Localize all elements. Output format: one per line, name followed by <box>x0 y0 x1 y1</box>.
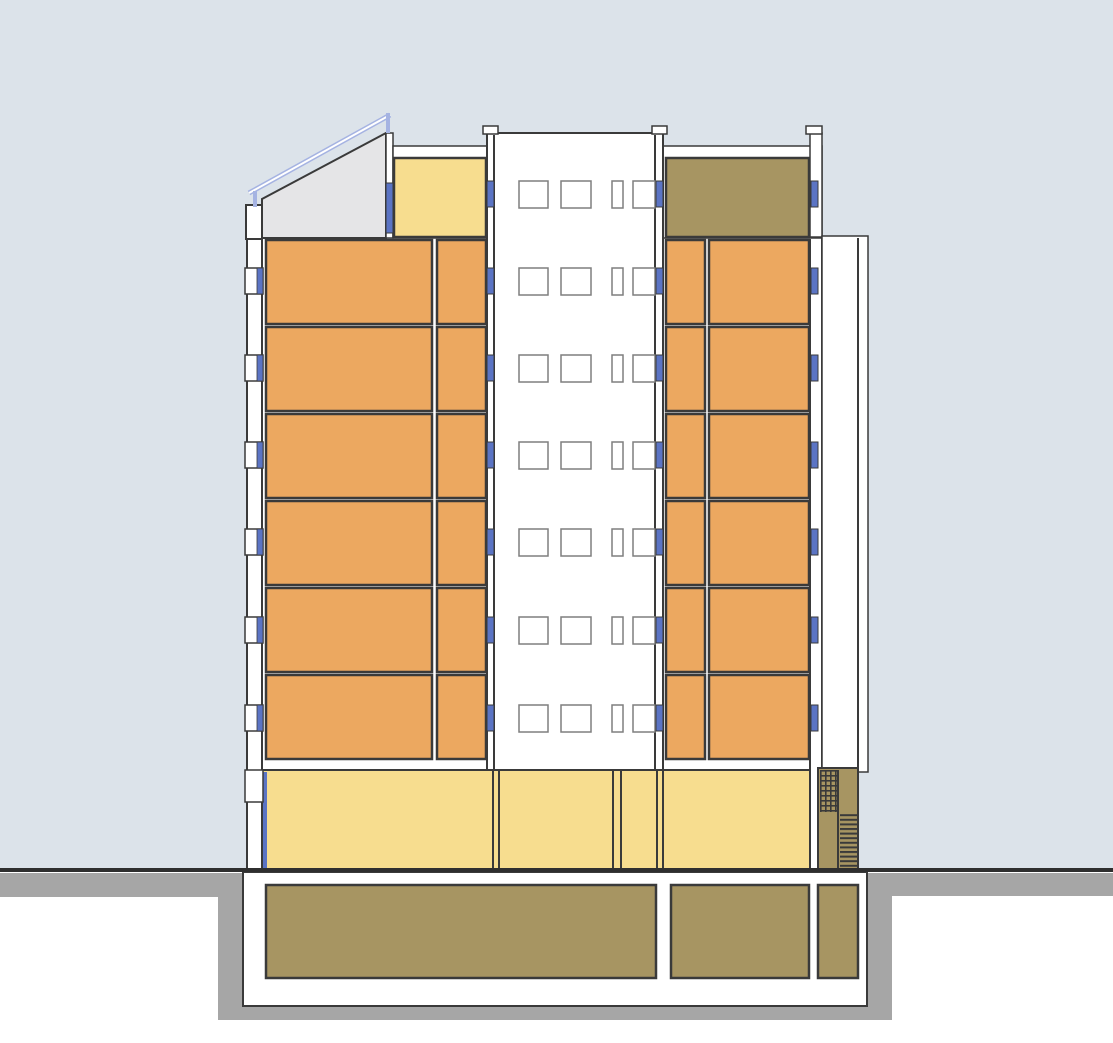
terrace-railing-post <box>253 191 257 207</box>
shaft-window <box>633 529 655 556</box>
shaft-door-glass <box>487 355 494 381</box>
shaft-window <box>561 181 591 208</box>
shaft-window <box>519 355 548 382</box>
ground-floor-partition <box>492 770 494 870</box>
apartment-room <box>266 327 432 411</box>
apartment-room <box>437 501 486 585</box>
apartment-room <box>709 675 809 759</box>
shaft-window <box>633 617 655 644</box>
right-wall-window-glass <box>811 268 818 294</box>
facade-window-glass <box>257 442 263 468</box>
side-annex <box>822 236 868 772</box>
right-wall-window-glass <box>811 529 818 555</box>
apartment-room <box>666 414 705 498</box>
facade-window-glass <box>257 617 263 643</box>
basement-room <box>671 885 809 978</box>
attic-room-olive <box>666 158 809 237</box>
shaft-window <box>633 268 655 295</box>
apartment-room <box>666 588 705 672</box>
parapet-cap-shaft-left <box>483 126 498 134</box>
ground-pit-wall-right <box>866 873 892 1020</box>
right-wall-window-glass <box>811 705 818 731</box>
stairwell-hatch <box>820 770 839 812</box>
attic-room-yellow <box>394 158 486 237</box>
shaft-window <box>519 442 548 469</box>
shaft-door-glass <box>656 268 663 294</box>
shaft-window <box>633 355 655 382</box>
shaft-door-glass <box>656 529 663 555</box>
shaft-window <box>612 617 623 644</box>
apartment-room <box>709 414 809 498</box>
ground-floor-hall <box>262 770 810 870</box>
shaft-door-glass <box>487 268 494 294</box>
facade-window-glass <box>257 268 263 294</box>
stair-flight <box>840 813 858 870</box>
shaft-window <box>612 529 623 556</box>
drawing-layers <box>0 0 1113 1020</box>
shaft-door-glass <box>656 181 663 207</box>
ground-floor-partition <box>656 770 658 870</box>
shaft-door-glass <box>487 529 494 555</box>
ground-pit-wall-left <box>218 873 244 1020</box>
apartment-room <box>266 414 432 498</box>
right-wall-window-glass <box>811 355 818 381</box>
shaft-window <box>612 181 623 208</box>
shaft-door-glass <box>656 617 663 643</box>
shaft-door-glass <box>487 617 494 643</box>
shaft-window <box>633 705 655 732</box>
shaft-window <box>519 529 548 556</box>
right-wall-window-glass <box>811 617 818 643</box>
terrace-railing-post <box>386 113 390 133</box>
apartment-room <box>666 240 705 324</box>
apartment-room <box>266 675 432 759</box>
shaft-window <box>561 442 591 469</box>
shaft-window <box>633 442 655 469</box>
apartment-room <box>666 327 705 411</box>
right-wall-window-glass <box>811 442 818 468</box>
shaft-window <box>519 181 548 208</box>
shaft-door-glass <box>487 181 494 207</box>
stairwell-divider <box>837 770 839 868</box>
apartment-room <box>266 501 432 585</box>
facade-window-glass <box>257 355 263 381</box>
shaft-window <box>612 705 623 732</box>
shaft-window <box>519 617 548 644</box>
ground-floor-partition <box>620 770 622 870</box>
apartment-room <box>709 240 809 324</box>
shaft-window <box>561 355 591 382</box>
basement-room <box>266 885 656 978</box>
shaft-window <box>612 268 623 295</box>
parapet-cap-shaft-right <box>652 126 667 134</box>
entrance-canopy <box>245 770 263 802</box>
shaft-door-glass <box>487 705 494 731</box>
ground-floor-partition <box>498 770 500 870</box>
shaft-window <box>561 705 591 732</box>
apartment-room <box>709 327 809 411</box>
apartment-room <box>709 588 809 672</box>
shaft-window <box>561 617 591 644</box>
apartment-room <box>437 588 486 672</box>
apartment-room <box>437 327 486 411</box>
apartment-room <box>437 414 486 498</box>
shaft-door-glass <box>487 442 494 468</box>
parapet-cap-right-wall <box>806 126 822 134</box>
ground-floor-partition <box>662 770 664 870</box>
right-wall-window-glass <box>811 181 818 207</box>
apartment-room <box>437 240 486 324</box>
architectural-section-page <box>0 0 1113 1043</box>
ground-band-left <box>0 873 246 897</box>
shaft-window <box>561 268 591 295</box>
grade-line <box>0 868 1113 872</box>
apartment-room <box>266 240 432 324</box>
shaft-window <box>561 529 591 556</box>
attic-window-glass <box>386 183 393 233</box>
apartment-room <box>709 501 809 585</box>
shaft-door-glass <box>656 355 663 381</box>
shaft-door-glass <box>656 705 663 731</box>
shaft-window <box>612 442 623 469</box>
ground-floor-partition <box>612 770 614 870</box>
shaft-window <box>633 181 655 208</box>
shaft-window <box>519 268 548 295</box>
apartment-room <box>666 675 705 759</box>
ground-band-right <box>866 873 1113 896</box>
shaft-door-glass <box>656 442 663 468</box>
basement-room <box>818 885 858 978</box>
apartment-room <box>666 501 705 585</box>
shaft-window <box>612 355 623 382</box>
apartment-room <box>266 588 432 672</box>
facade-window-glass <box>257 529 263 555</box>
left-wall-top <box>246 205 262 239</box>
facade-window-glass <box>257 705 263 731</box>
apartment-room <box>437 675 486 759</box>
side-annex-inner-line <box>857 238 859 770</box>
building-cross-section-drawing <box>0 0 1113 1043</box>
shaft-window <box>519 705 548 732</box>
